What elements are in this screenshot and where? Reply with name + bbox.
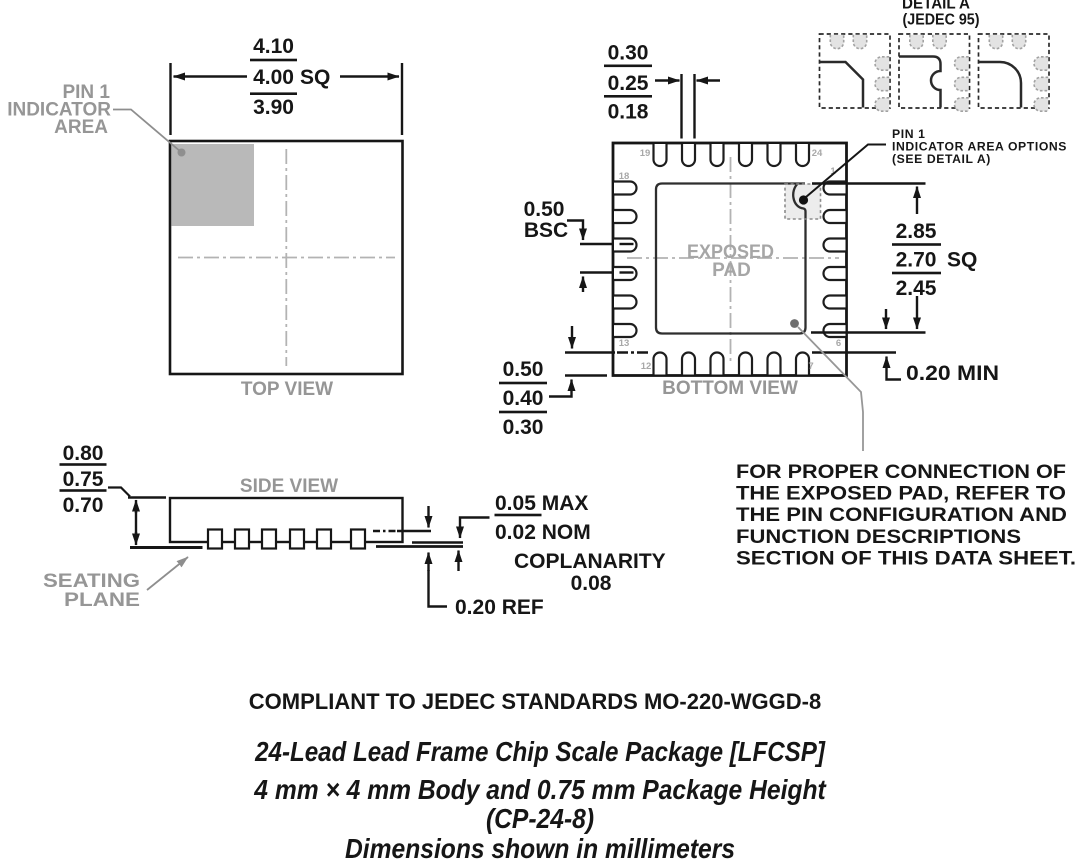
svg-text:FOR PROPER CONNECTION OF: FOR PROPER CONNECTION OF [736, 462, 1066, 483]
svg-text:4.10: 4.10 [253, 35, 294, 58]
svg-text:THE PIN CONFIGURATION AND: THE PIN CONFIGURATION AND [736, 505, 1067, 526]
svg-text:SEATING: SEATING [43, 571, 140, 592]
svg-text:0.02 NOM: 0.02 NOM [495, 521, 591, 544]
svg-text:0.40: 0.40 [503, 387, 544, 410]
svg-text:0.50: 0.50 [524, 198, 565, 221]
svg-text:2.85: 2.85 [896, 220, 937, 243]
svg-text:FUNCTION DESCRIPTIONS: FUNCTION DESCRIPTIONS [736, 527, 1021, 548]
svg-text:0.05 MAX: 0.05 MAX [495, 492, 588, 515]
svg-text:COPLANARITY: COPLANARITY [514, 550, 666, 573]
svg-text:(SEE DETAIL A): (SEE DETAIL A) [892, 152, 991, 166]
svg-text:AREA: AREA [54, 117, 108, 138]
svg-text:0.25: 0.25 [608, 72, 649, 95]
svg-text:0.20 REF: 0.20 REF [455, 596, 544, 619]
svg-text:12: 12 [641, 361, 652, 372]
svg-text:2.45: 2.45 [896, 277, 937, 300]
svg-text:24-Lead Lead Frame Chip Scale: 24-Lead Lead Frame Chip Scale Package [L… [254, 735, 826, 767]
svg-text:SQ: SQ [947, 249, 977, 272]
svg-text:19: 19 [640, 148, 651, 159]
svg-text:18: 18 [619, 171, 630, 182]
svg-text:0.70: 0.70 [63, 494, 104, 517]
svg-text:BOTTOM VIEW: BOTTOM VIEW [662, 378, 798, 399]
svg-text:0.80: 0.80 [63, 442, 104, 465]
svg-text:PAD: PAD [712, 260, 751, 281]
svg-text:THE EXPOSED PAD, REFER TO: THE EXPOSED PAD, REFER TO [736, 484, 1066, 505]
svg-text:Dimensions shown in millimeter: Dimensions shown in millimeters [345, 833, 735, 861]
svg-text:PLANE: PLANE [64, 590, 140, 611]
svg-text:3.90: 3.90 [253, 96, 294, 119]
svg-text:0.50: 0.50 [503, 358, 544, 381]
svg-text:BSC: BSC [524, 219, 568, 242]
svg-text:SECTION OF THIS DATA SHEET.: SECTION OF THIS DATA SHEET. [736, 548, 1076, 569]
svg-text:6: 6 [836, 338, 841, 349]
svg-text:0.18: 0.18 [608, 101, 649, 124]
svg-text:13: 13 [619, 338, 630, 349]
svg-text:0.75: 0.75 [63, 468, 104, 491]
svg-text:(JEDEC 95): (JEDEC 95) [903, 12, 980, 29]
svg-text:0.30: 0.30 [503, 416, 544, 439]
svg-text:2.70: 2.70 [896, 249, 937, 272]
svg-text:24: 24 [812, 148, 823, 159]
svg-text:COMPLIANT TO JEDEC STANDARDS M: COMPLIANT TO JEDEC STANDARDS MO-220-WGGD… [249, 689, 821, 714]
svg-text:SQ: SQ [300, 66, 330, 89]
svg-text:0.20 MIN: 0.20 MIN [906, 362, 999, 385]
svg-text:SIDE VIEW: SIDE VIEW [240, 476, 338, 497]
svg-text:4.00: 4.00 [253, 66, 294, 89]
svg-text:0.08: 0.08 [571, 572, 612, 595]
svg-text:TOP VIEW: TOP VIEW [241, 379, 333, 400]
svg-text:(CP-24-8): (CP-24-8) [486, 803, 594, 835]
svg-text:7: 7 [808, 361, 813, 372]
svg-text:4 mm × 4 mm Body and 0.75 mm P: 4 mm × 4 mm Body and 0.75 mm Package Hei… [253, 774, 826, 806]
svg-text:0.30: 0.30 [608, 42, 649, 65]
